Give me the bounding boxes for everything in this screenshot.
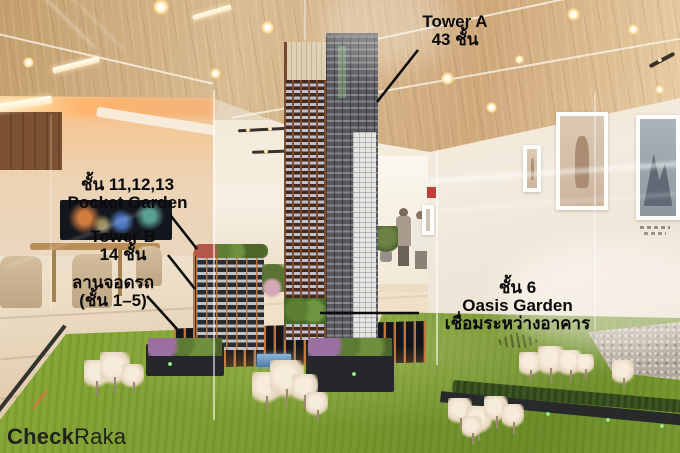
label-pocket-garden-floors: ชั้น 11,12,13: [40, 176, 215, 194]
ceiling-light: [261, 21, 274, 34]
person-body: [396, 216, 411, 246]
label-tower-a: Tower A 43 ชั้น: [385, 13, 525, 49]
oasis-garden-level: [284, 298, 326, 324]
label-parking-name: ลานจอดรถ: [38, 274, 188, 292]
ceiling-light: [655, 85, 664, 94]
picture-frame: [523, 145, 541, 192]
ceiling-light: [628, 24, 639, 35]
wood-shelf-panel: [0, 112, 62, 170]
label-tower-a-name: Tower A: [385, 13, 525, 31]
picture-frame: [556, 112, 608, 210]
garden-led-light: [660, 424, 664, 428]
label-parking: ลานจอดรถ (ชั้น 1–5): [38, 274, 188, 310]
watermark-light: Raka: [74, 424, 126, 449]
model-tree: [462, 416, 482, 440]
label-oasis-floor: ชั้น 6: [430, 279, 605, 297]
ceiling-light: [486, 102, 497, 113]
glass-seam: [304, 0, 306, 40]
plant-pot: [380, 252, 392, 262]
model-tree: [612, 360, 634, 386]
checkraka-watermark: CheckRaka: [7, 424, 126, 450]
red-sign: [427, 187, 436, 198]
planter-greenery: [148, 338, 222, 356]
small-wall-frame: [422, 205, 434, 235]
label-parking-floors: (ชั้น 1–5): [38, 292, 188, 310]
model-tree: [306, 392, 328, 418]
ceiling-light: [210, 68, 221, 79]
model-tree: [576, 354, 594, 376]
ceiling-light: [567, 8, 580, 21]
label-oasis-garden: ชั้น 6 Oasis Garden เชื่อมระหว่างอาคาร: [430, 279, 605, 333]
label-oasis-desc: เชื่อมระหว่างอาคาร: [430, 315, 605, 333]
ceiling-light: [441, 72, 454, 85]
label-pocket-garden-name: Pocket Garden: [40, 194, 215, 212]
label-tower-b-floors: 14 ชั้น: [58, 246, 188, 264]
model-tree: [122, 364, 144, 390]
planter-greenery: [308, 338, 392, 356]
garden-led-light: [168, 362, 172, 366]
cafe-chair: [0, 256, 42, 308]
ceiling-light: [23, 57, 34, 68]
person-legs: [415, 251, 427, 269]
annotated-model-photo: Tower A 43 ชั้น ชั้น 11,12,13 Pocket Gar…: [0, 0, 680, 453]
wall-caption-text: [644, 232, 666, 235]
pink-tree: [262, 278, 282, 300]
label-pocket-garden: ชั้น 11,12,13 Pocket Garden: [40, 176, 215, 212]
tower-b-model: [196, 252, 264, 350]
garden-led-light: [606, 418, 610, 422]
garden-led-light: [352, 372, 356, 376]
eiling-light: [515, 55, 524, 64]
person-legs: [398, 246, 409, 266]
label-oasis-name: Oasis Garden: [430, 297, 605, 315]
wall-caption-text: [640, 226, 670, 229]
tower-a-white-facade: [353, 132, 376, 338]
glass-seam: [213, 90, 215, 420]
label-tower-b: Tower B 14 ชั้น: [58, 228, 188, 264]
model-tree: [502, 404, 524, 430]
garden-led-light: [546, 412, 550, 416]
label-tower-b-name: Tower B: [58, 228, 188, 246]
label-tower-a-floors: 43 ชั้น: [385, 31, 525, 49]
tower-b-roof-garden: [194, 244, 268, 258]
watermark-bold: Check: [7, 424, 74, 449]
